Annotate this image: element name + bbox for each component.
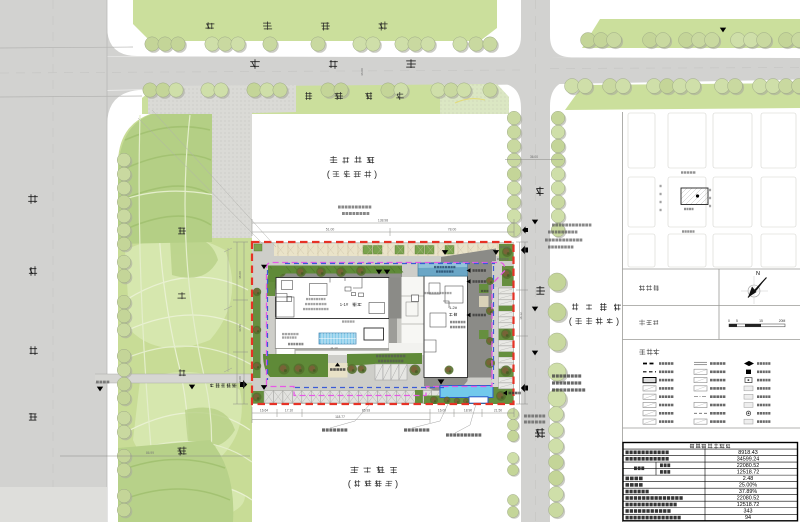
svg-text:36.00: 36.00 (360, 68, 364, 76)
svg-text:(: ( (327, 169, 330, 179)
svg-text:1-2#: 1-2# (449, 305, 458, 310)
svg-text:343: 343 (744, 509, 753, 515)
svg-text:(: ( (569, 316, 572, 326)
svg-text:11.10: 11.10 (330, 346, 338, 350)
svg-text:8918.43: 8918.43 (738, 450, 758, 456)
svg-text:34599.24: 34599.24 (737, 456, 759, 462)
svg-text:86.99: 86.99 (146, 451, 154, 455)
svg-text:18.90: 18.90 (464, 409, 472, 413)
svg-text:22080.52: 22080.52 (737, 495, 759, 501)
svg-text:15: 15 (759, 319, 763, 323)
svg-text:18.12: 18.12 (519, 312, 523, 320)
svg-text:0: 0 (728, 319, 730, 323)
svg-text:N: N (756, 271, 760, 277)
svg-text:12518.72: 12518.72 (737, 502, 759, 508)
svg-text:94: 94 (745, 515, 751, 521)
svg-text:12518.72: 12518.72 (737, 469, 759, 475)
svg-text:1-1#: 1-1# (340, 302, 349, 307)
svg-text:34.00: 34.00 (238, 376, 242, 384)
svg-text:138.98: 138.98 (378, 219, 388, 223)
svg-text:): ) (374, 169, 377, 179)
svg-text:(: ( (348, 479, 351, 489)
svg-text:16.64: 16.64 (260, 409, 268, 413)
svg-text:): ) (395, 479, 398, 489)
svg-text:2.48: 2.48 (743, 476, 754, 482)
svg-text:20M: 20M (779, 319, 786, 323)
svg-text:34.50: 34.50 (238, 324, 242, 332)
svg-text:38.00: 38.00 (238, 271, 242, 279)
svg-text:118.77: 118.77 (335, 415, 345, 419)
svg-text:25.00%: 25.00% (739, 482, 757, 488)
svg-text:17.10: 17.10 (285, 409, 293, 413)
svg-text:51.00: 51.00 (326, 228, 335, 232)
svg-text:5: 5 (736, 319, 738, 323)
svg-text:36.00: 36.00 (530, 155, 538, 159)
svg-text:22080.52: 22080.52 (737, 463, 759, 469)
svg-text:): ) (616, 316, 619, 326)
svg-text:21.50: 21.50 (494, 409, 502, 413)
svg-text:37.89%: 37.89% (739, 489, 757, 495)
svg-text:78.00: 78.00 (448, 228, 457, 232)
